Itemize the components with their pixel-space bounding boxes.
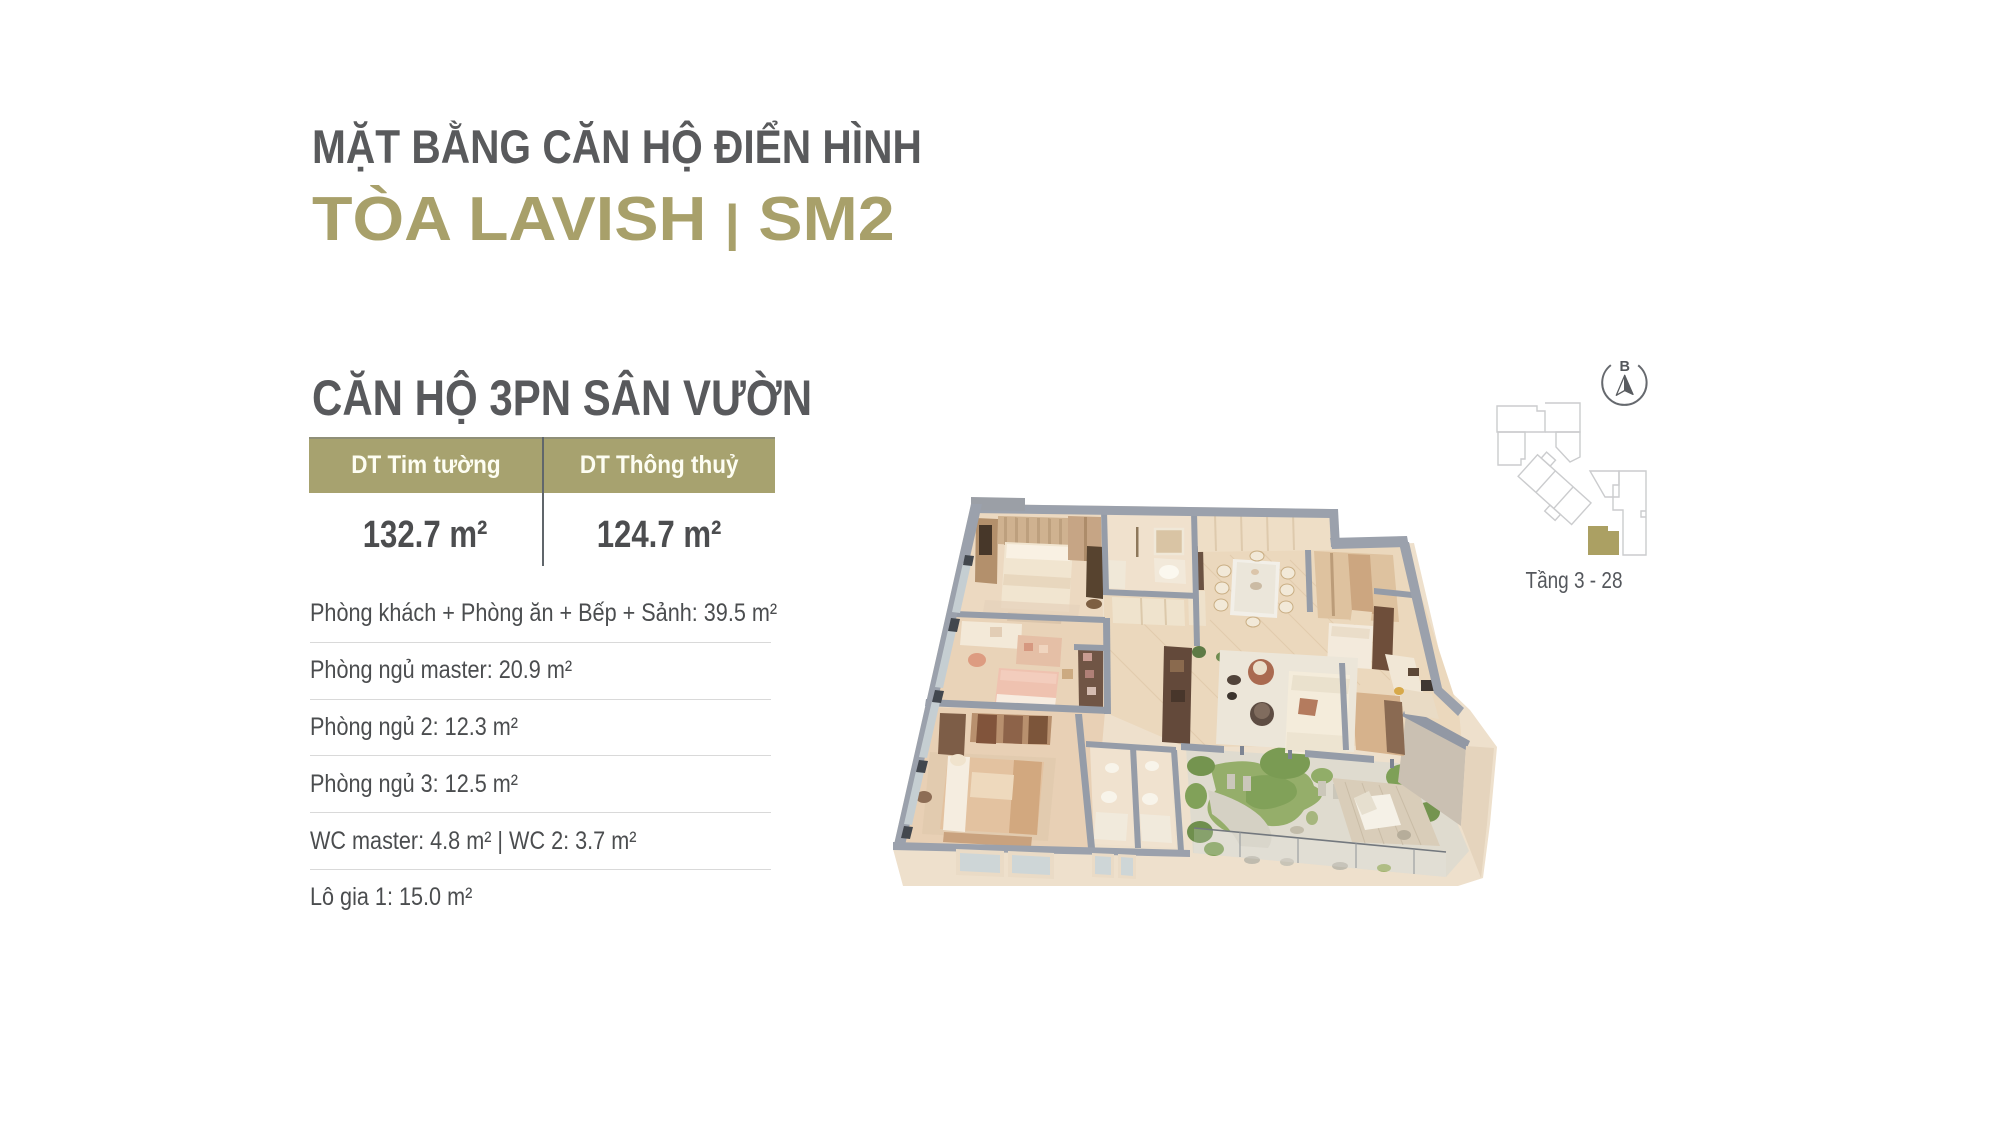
svg-text:B: B	[1619, 359, 1629, 375]
svg-text:Tầng 3 - 28: Tầng 3 - 28	[1526, 567, 1623, 593]
